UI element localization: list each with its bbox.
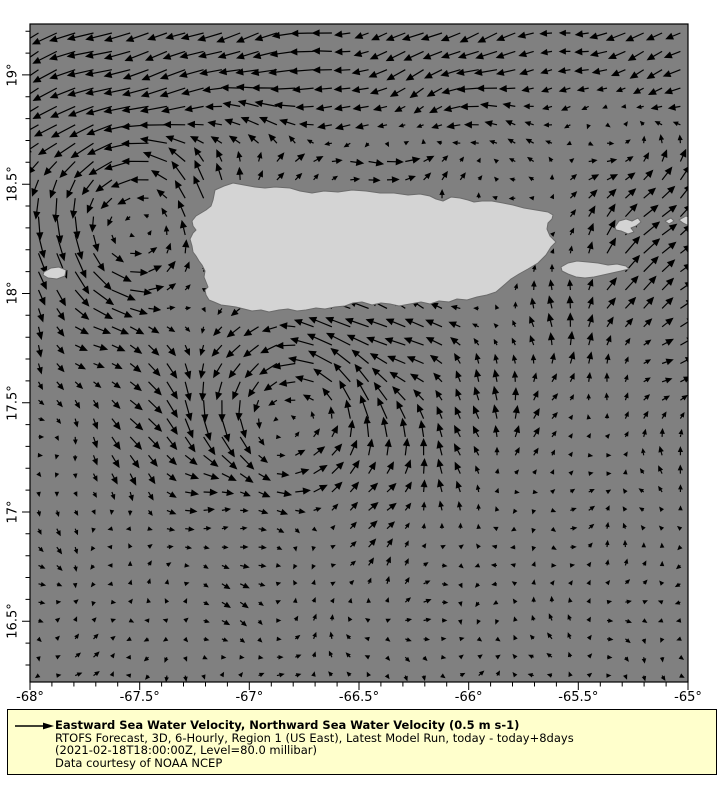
sea-water-velocity-map-page: 19° 18.5° 18° 17.5° 17° 16.5° -68° -67.5… [0, 0, 720, 800]
x-axis-label: -65.5° [558, 690, 598, 705]
legend-title: Eastward Sea Water Velocity, Northward S… [55, 719, 519, 732]
x-axis-label: -65° [674, 690, 702, 705]
x-axis-label: -66° [455, 690, 483, 705]
x-axis-label: -67.5° [120, 690, 160, 705]
legend-run-info: (2021-02-18T18:00:00Z, Level=80.0 millib… [55, 744, 317, 757]
legend-box: Eastward Sea Water Velocity, Northward S… [7, 709, 717, 775]
y-axis-label: 19° [6, 63, 21, 86]
reference-arrow-icon [13, 720, 55, 732]
x-axis-label: -66.5° [339, 690, 379, 705]
y-axis-label: 16.5° [6, 604, 21, 639]
y-axis-label: 18° [6, 282, 21, 305]
y-axis-label: 17° [6, 500, 21, 523]
y-axis-label: 18.5° [6, 166, 21, 201]
map-plot [0, 0, 720, 800]
x-axis-label: -68° [16, 690, 44, 705]
x-axis-label: -67° [235, 690, 263, 705]
legend-credit: Data courtesy of NOAA NCEP [55, 757, 222, 770]
y-axis-label: 17.5° [6, 385, 21, 420]
